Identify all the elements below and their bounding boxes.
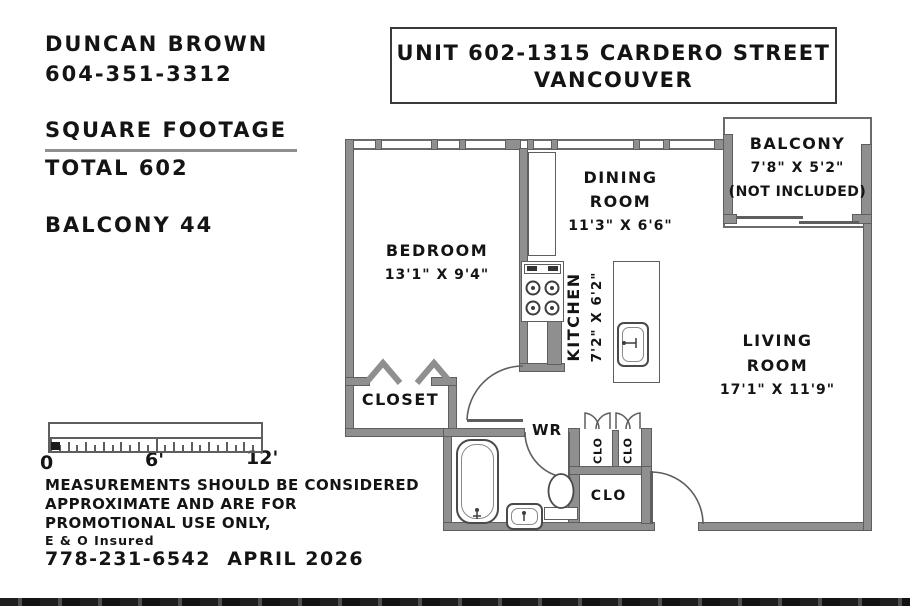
scan-artifact-strip (0, 598, 910, 606)
balcony-footage: BALCONY 44 (45, 213, 213, 237)
living-name-2: ROOM (695, 353, 860, 378)
balcony-slider-line-2 (799, 221, 859, 224)
disclaimer-line-2: APPROXIMATE AND ARE FOR (45, 495, 297, 513)
kitchen-label: KITCHEN 7'2" X 6'2" (562, 257, 618, 377)
plan-title-box: UNIT 602-1315 CARDERO STREET VANCOUVER (390, 27, 837, 104)
entry-door-leaf (650, 471, 653, 524)
window-mullion (459, 139, 466, 150)
dining-dims: 11'3" X 6'6" (553, 214, 688, 238)
kitchen-sink-icon (617, 322, 649, 367)
floor-plan-page: DUNCAN BROWN 604-351-3312 SQUARE FOOTAGE… (0, 0, 910, 606)
window-mullion (527, 139, 534, 150)
window-mullion (551, 139, 558, 150)
scale-bar-zero-block (51, 442, 60, 450)
dining-room-label: DINING ROOM 11'3" X 6'6" (553, 166, 688, 238)
window-mullion (375, 139, 382, 150)
plan-title-line2: VANCOUVER (392, 67, 835, 94)
bathtub-icon (456, 439, 499, 524)
balcony-dims: 7'8" X 5'2" (726, 156, 869, 180)
agent-phone: 604-351-3312 (45, 62, 233, 86)
toilet-tank (544, 507, 578, 520)
balcony-note: (NOT INCLUDED) (726, 180, 869, 204)
washroom-label: WR (532, 421, 562, 439)
insurance-note: E & O Insured (45, 533, 155, 548)
closet-label: CLOSET (352, 390, 449, 409)
living-room-label: LIVING ROOM 17'1" X 11'9" (695, 328, 860, 403)
closet-top-right-stub (431, 377, 457, 386)
scale-bar (48, 422, 263, 453)
disclaimer-line-3: PROMOTIONAL USE ONLY, (45, 514, 271, 532)
bedroom-kitchen-divider-wall (519, 148, 528, 364)
unit-right-wall (863, 222, 872, 531)
balcony-slider-line-1 (737, 216, 803, 219)
unit-bottom-right-wall (698, 522, 872, 531)
closet-entry-label: CLO (577, 488, 641, 504)
bedroom-name: BEDROOM (357, 238, 517, 263)
bathroom-left-wall (443, 428, 452, 531)
square-footage-total: TOTAL 602 (45, 156, 189, 180)
phone-date: 778-231-6542 APRIL 2026 (45, 548, 364, 570)
closets-middle-wall (568, 466, 652, 475)
kitchen-dims: 7'2" X 6'2" (586, 257, 608, 377)
bedroom-dims: 13'1" X 9'4" (357, 263, 517, 287)
window-mullion (431, 139, 438, 150)
dining-name-1: DINING (553, 166, 688, 190)
closet-bottom-wall (345, 428, 457, 437)
balcony-label: BALCONY 7'8" X 5'2" (NOT INCLUDED) (726, 132, 869, 204)
window-mullion (663, 139, 670, 150)
scale-label-0: 0 (40, 452, 53, 474)
bathroom-sink-icon (506, 503, 543, 530)
balcony-name: BALCONY (726, 132, 869, 156)
closet-small-left-label: CLO (592, 433, 605, 469)
window-mullion (633, 139, 640, 150)
stove-icon (521, 261, 564, 322)
bathroom-top-wall (443, 428, 525, 437)
balcony-corner-stub-left (723, 214, 737, 224)
fridge-counter (528, 152, 556, 256)
ruler-ticks (50, 439, 261, 451)
living-name-1: LIVING (695, 328, 860, 353)
square-footage-heading: SQUARE FOOTAGE (45, 118, 297, 152)
bedroom-label: BEDROOM 13'1" X 9'4" (357, 238, 517, 287)
bedroom-door-leaf (467, 419, 523, 422)
plan-title-line1: UNIT 602-1315 CARDERO STREET (392, 40, 835, 67)
living-dims: 17'1" X 11'9" (695, 378, 860, 403)
closet-top-left-stub (345, 377, 370, 386)
closet-small-right-label: CLO (622, 433, 635, 469)
disclaimer-line-1: MEASUREMENTS SHOULD BE CONSIDERED (45, 476, 419, 494)
agent-name: DUNCAN BROWN (45, 32, 268, 56)
top-window-wall (345, 139, 729, 150)
kitchen-stub-wall (547, 320, 562, 365)
dining-name-2: ROOM (553, 190, 688, 214)
kitchen-name: KITCHEN (562, 257, 586, 377)
